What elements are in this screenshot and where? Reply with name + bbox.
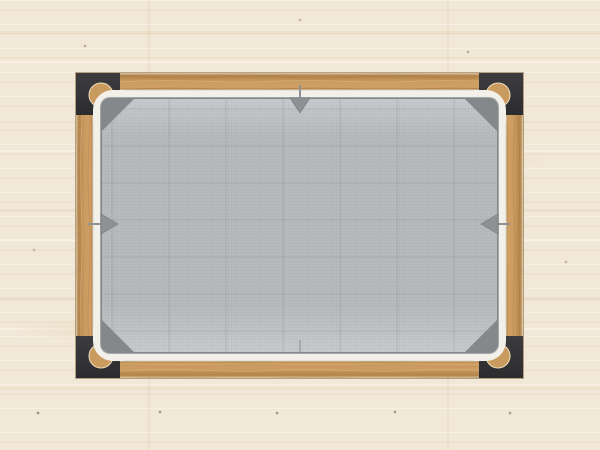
- handle-pin: [299, 85, 301, 98]
- handle-pin: [497, 223, 510, 225]
- frame-beam-bottom: [76, 361, 523, 378]
- bottom-edge-handle[interactable]: [299, 340, 301, 354]
- frame-beam-right: [506, 73, 523, 378]
- handle-pin: [299, 340, 301, 354]
- canvas-fabric: [102, 99, 497, 352]
- handle-pin: [88, 223, 102, 225]
- frame-beam-left: [76, 73, 93, 378]
- canvas-cover: [100, 97, 499, 354]
- pergola-top-view-scene: [0, 0, 600, 450]
